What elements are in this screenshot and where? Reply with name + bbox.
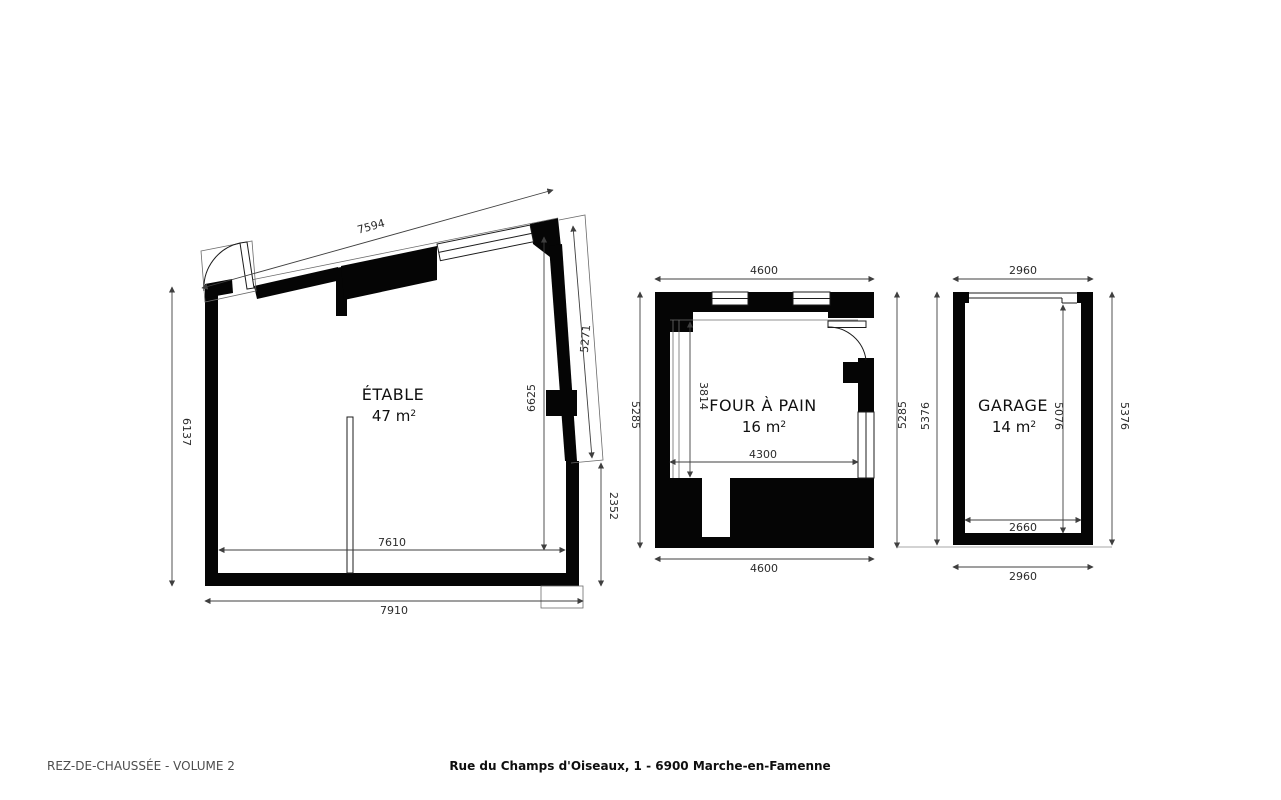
garage-room-area: 14 m2 [992, 418, 1036, 436]
floor-plan-page: 7594 6137 5271 6625 2352 7610 7910 ÉTABL… [0, 0, 1281, 800]
garage-area-sup: 2 [1030, 420, 1036, 430]
etable-window [437, 225, 533, 261]
title-block: REZ-DE-CHAUSSÉE - VOLUME 2 Rue du Champs… [47, 758, 831, 773]
dim-four-bottom: 4600 [750, 562, 778, 575]
address-title: Rue du Champs d'Oiseaux, 1 - 6900 Marche… [449, 759, 830, 773]
garage-room-name: GARAGE [978, 396, 1048, 415]
dim-four-left: 5285 [629, 401, 642, 429]
dim-etable-right: 5271 [578, 324, 593, 353]
four-window-right [858, 412, 874, 478]
dim-garage-bottom: 2960 [1009, 570, 1037, 583]
four-door [828, 321, 866, 360]
dim-garage-inner-right: 5076 [1052, 402, 1065, 430]
dim-garage-left: 5376 [919, 402, 932, 430]
dim-four-top: 4600 [750, 264, 778, 277]
etable-room-name: ÉTABLE [362, 385, 425, 404]
floor-plan-four-a-pain: 4600 5285 3814 4300 5285 4600 FOUR À PAI… [629, 264, 909, 575]
dim-etable-left: 6137 [180, 418, 193, 446]
dim-garage-top: 2960 [1009, 264, 1037, 277]
four-area-value: 16 m [742, 418, 780, 436]
dim-garage-inner-bottom: 2660 [1009, 521, 1037, 534]
dim-garage-right: 5376 [1118, 402, 1131, 430]
dim-etable-top: 7594 [356, 217, 386, 237]
four-room-area: 16 m2 [742, 418, 786, 436]
dim-four-right: 5285 [896, 401, 909, 429]
dim-etable-inner-bottom: 7610 [378, 536, 406, 549]
floor-plan-garage: 2960 5376 5076 2660 5376 2960 GARAGE 14 … [897, 264, 1131, 583]
etable-area-value: 47 m [372, 407, 410, 425]
four-area-sup: 2 [780, 420, 786, 430]
etable-room-area: 47 m2 [372, 407, 416, 425]
dim-four-inner-left: 3814 [697, 382, 710, 410]
floor-plan-canvas: 7594 6137 5271 6625 2352 7610 7910 ÉTABL… [0, 0, 1281, 800]
etable-area-sup: 2 [410, 409, 416, 419]
garage-area-value: 14 m [992, 418, 1030, 436]
four-room-name: FOUR À PAIN [709, 396, 817, 415]
dim-etable-lower-right: 2352 [607, 492, 620, 520]
garage-door [969, 293, 1077, 303]
floor-title: REZ-DE-CHAUSSÉE - VOLUME 2 [47, 758, 235, 773]
dim-etable-inner-right: 6625 [525, 384, 538, 412]
floor-plan-etable: 7594 6137 5271 6625 2352 7610 7910 ÉTABL… [172, 190, 620, 617]
dim-four-inner-bottom: 4300 [749, 448, 777, 461]
dim-etable-bottom: 7910 [380, 604, 408, 617]
